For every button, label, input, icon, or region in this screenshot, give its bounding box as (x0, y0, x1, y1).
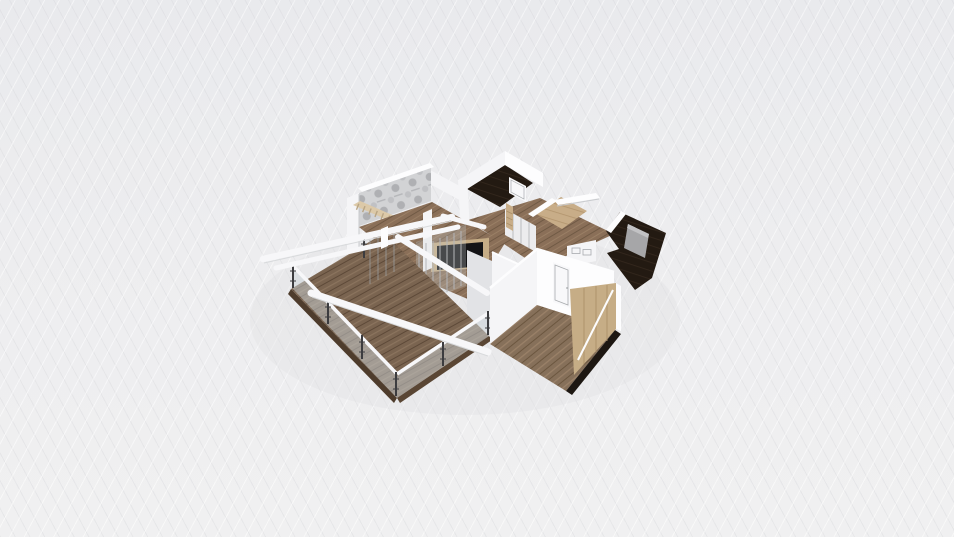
floorplan-3d-viewport[interactable] (0, 0, 954, 537)
bottom-door-leaf (553, 262, 570, 308)
floating-shelf (554, 193, 600, 206)
terrace-corner-column (381, 226, 388, 249)
floating-shelf-top (554, 193, 600, 205)
bottom-room-door (553, 262, 570, 308)
partition-white-edge (616, 283, 621, 331)
bottom-door-knob (566, 287, 568, 289)
